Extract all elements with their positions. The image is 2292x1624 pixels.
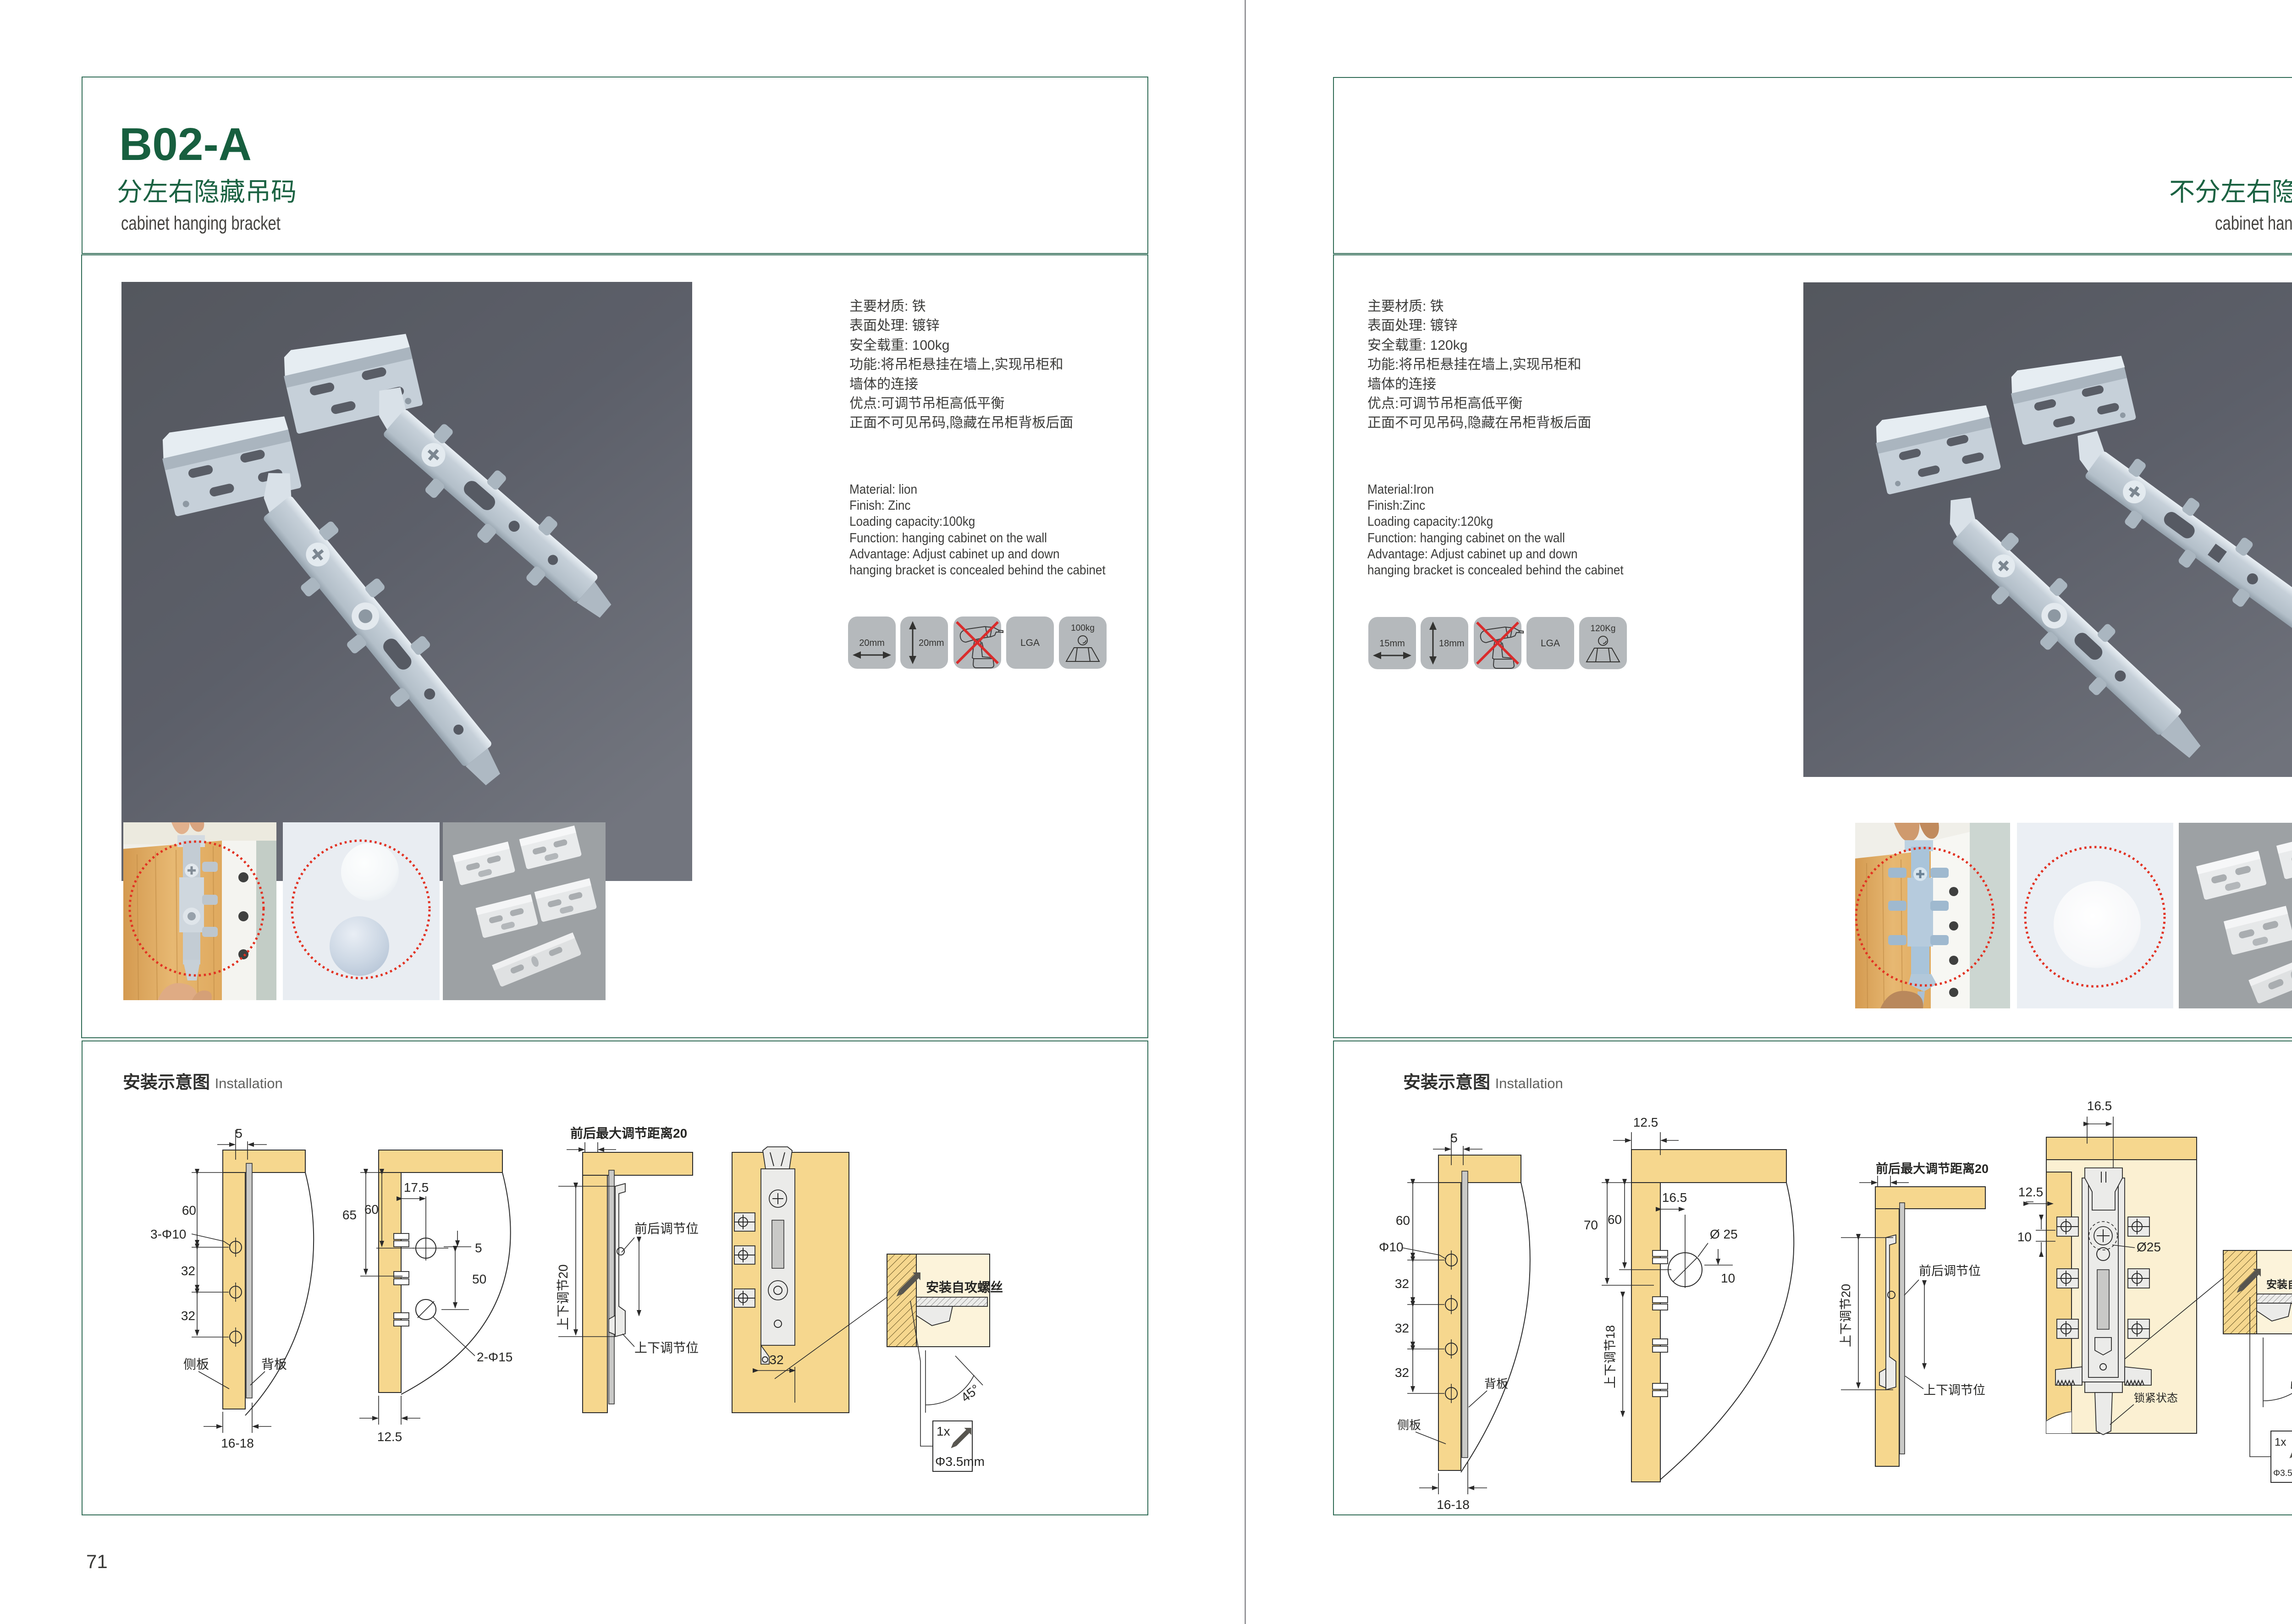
svg-text:32: 32 (1395, 1277, 1409, 1291)
svg-text:安装自攻螺丝: 安装自攻螺丝 (2266, 1278, 2292, 1290)
svg-text:1x: 1x (2275, 1436, 2286, 1448)
svg-text:16.5: 16.5 (1662, 1190, 1687, 1205)
svg-text:15mm: 15mm (1379, 639, 1405, 649)
svg-text:Φ10: Φ10 (1379, 1240, 1403, 1254)
svg-text:LGA: LGA (1020, 638, 1040, 648)
svg-text:LGA: LGA (1541, 638, 1560, 649)
svg-text:5: 5 (235, 1126, 242, 1140)
svg-text:12.5: 12.5 (1633, 1115, 1658, 1129)
svg-text:侧板: 侧板 (183, 1357, 209, 1371)
svg-text:32: 32 (181, 1309, 195, 1323)
svg-text:锁紧状态: 锁紧状态 (2134, 1392, 2178, 1404)
svg-text:2-Φ15: 2-Φ15 (477, 1350, 512, 1364)
svg-text:60: 60 (1396, 1213, 1410, 1228)
svg-text:Φ3.5mm: Φ3.5mm (2273, 1469, 2292, 1478)
svg-text:45°: 45° (2286, 1372, 2292, 1393)
svg-text:65: 65 (342, 1208, 357, 1222)
svg-text:安装自攻螺丝: 安装自攻螺丝 (926, 1280, 1003, 1294)
svg-text:上下调节20: 上下调节20 (556, 1264, 570, 1330)
svg-text:上下调节20: 上下调节20 (1839, 1284, 1853, 1347)
svg-text:16-18: 16-18 (1437, 1497, 1470, 1512)
svg-text:Φ3.5mm: Φ3.5mm (935, 1454, 985, 1469)
svg-text:10: 10 (1721, 1271, 1735, 1285)
svg-text:3-Φ10: 3-Φ10 (150, 1227, 186, 1241)
svg-text:上下调节位: 上下调节位 (634, 1341, 699, 1355)
svg-text:45°: 45° (959, 1382, 982, 1404)
svg-text:120Kg: 120Kg (1591, 624, 1616, 633)
svg-text:上下调节位: 上下调节位 (1923, 1383, 1985, 1397)
svg-text:16.5: 16.5 (2087, 1099, 2112, 1113)
svg-text:60: 60 (1608, 1212, 1622, 1227)
svg-text:前后调节位: 前后调节位 (634, 1222, 699, 1236)
svg-text:12.5: 12.5 (2018, 1185, 2044, 1199)
svg-text:Ø 25: Ø 25 (1710, 1227, 1738, 1241)
svg-text:60: 60 (182, 1203, 196, 1217)
svg-text:12.5: 12.5 (377, 1430, 402, 1444)
svg-text:17.5: 17.5 (404, 1180, 429, 1195)
svg-text:32: 32 (769, 1353, 783, 1367)
svg-text:10: 10 (2017, 1230, 2032, 1244)
svg-text:5: 5 (475, 1241, 482, 1255)
svg-text:上下调节18: 上下调节18 (1603, 1325, 1617, 1388)
svg-text:20mm: 20mm (919, 638, 944, 648)
svg-text:1x: 1x (937, 1424, 950, 1438)
svg-text:前后调节位: 前后调节位 (1919, 1264, 1981, 1278)
svg-text:前后最大调节距离20: 前后最大调节距离20 (1876, 1162, 1989, 1176)
svg-text:16-18: 16-18 (221, 1436, 254, 1450)
svg-text:32: 32 (181, 1264, 195, 1278)
svg-text:背板: 背板 (261, 1357, 287, 1371)
svg-text:18mm: 18mm (1439, 639, 1465, 649)
svg-text:侧板: 侧板 (1397, 1418, 1421, 1432)
svg-text:70: 70 (1584, 1218, 1598, 1232)
svg-text:50: 50 (472, 1272, 486, 1286)
svg-text:60: 60 (364, 1202, 379, 1217)
svg-text:20mm: 20mm (859, 638, 885, 648)
svg-text:前后最大调节距离20: 前后最大调节距离20 (570, 1126, 687, 1140)
svg-text:Ø25: Ø25 (2137, 1240, 2161, 1254)
svg-text:100kg: 100kg (1071, 623, 1095, 633)
svg-text:32: 32 (1395, 1365, 1409, 1380)
svg-text:32: 32 (1395, 1321, 1409, 1335)
svg-text:背板: 背板 (1484, 1377, 1508, 1391)
